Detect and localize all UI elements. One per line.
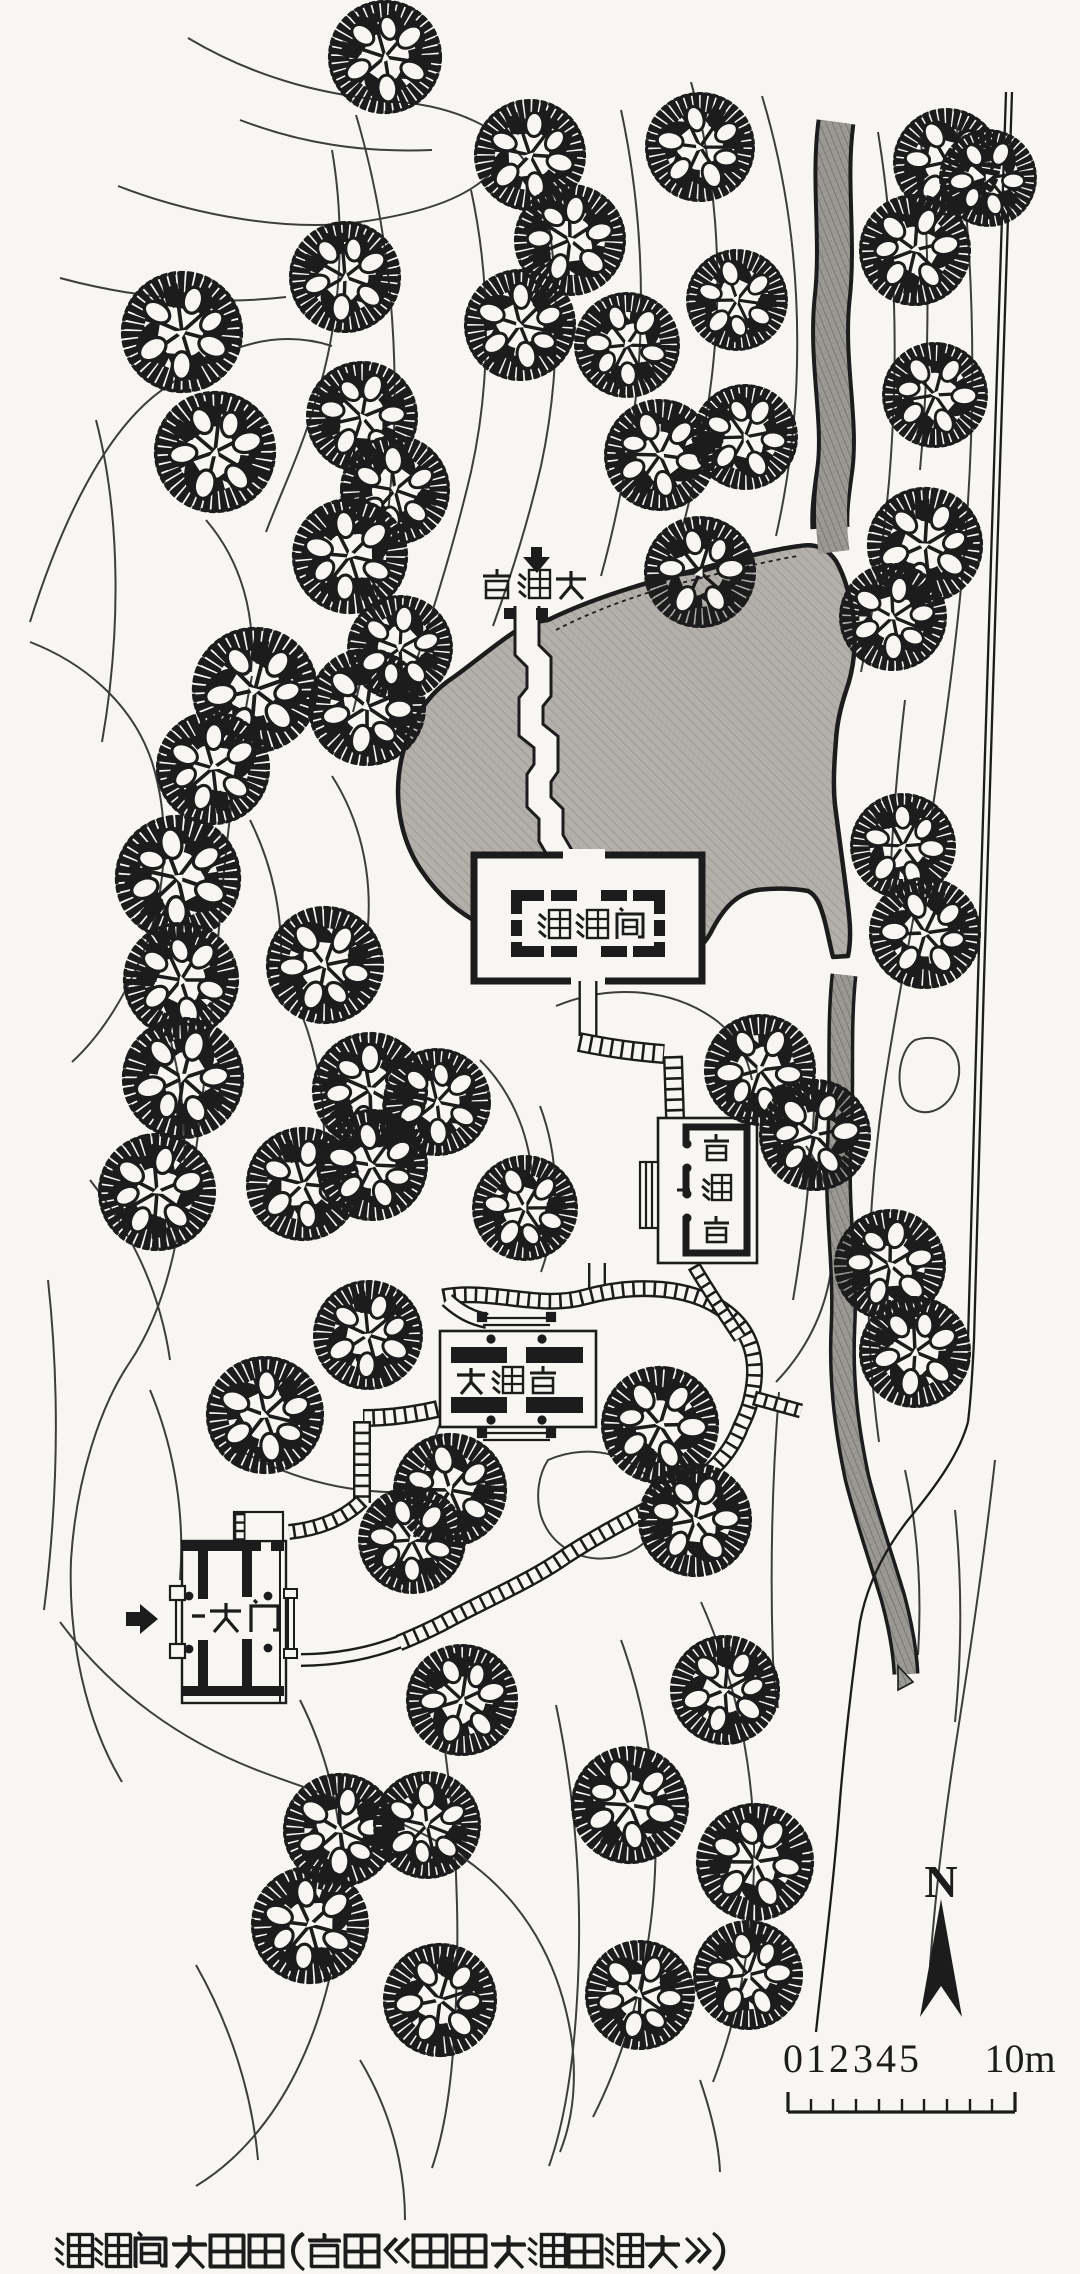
svg-text:2: 2	[829, 2036, 849, 2081]
svg-text:4: 4	[876, 2036, 896, 2081]
svg-text:3: 3	[853, 2036, 873, 2081]
svg-text:5: 5	[899, 2036, 919, 2081]
svg-text:1: 1	[806, 2036, 826, 2081]
svg-text:10m: 10m	[984, 2036, 1055, 2081]
svg-text:0: 0	[783, 2036, 803, 2081]
